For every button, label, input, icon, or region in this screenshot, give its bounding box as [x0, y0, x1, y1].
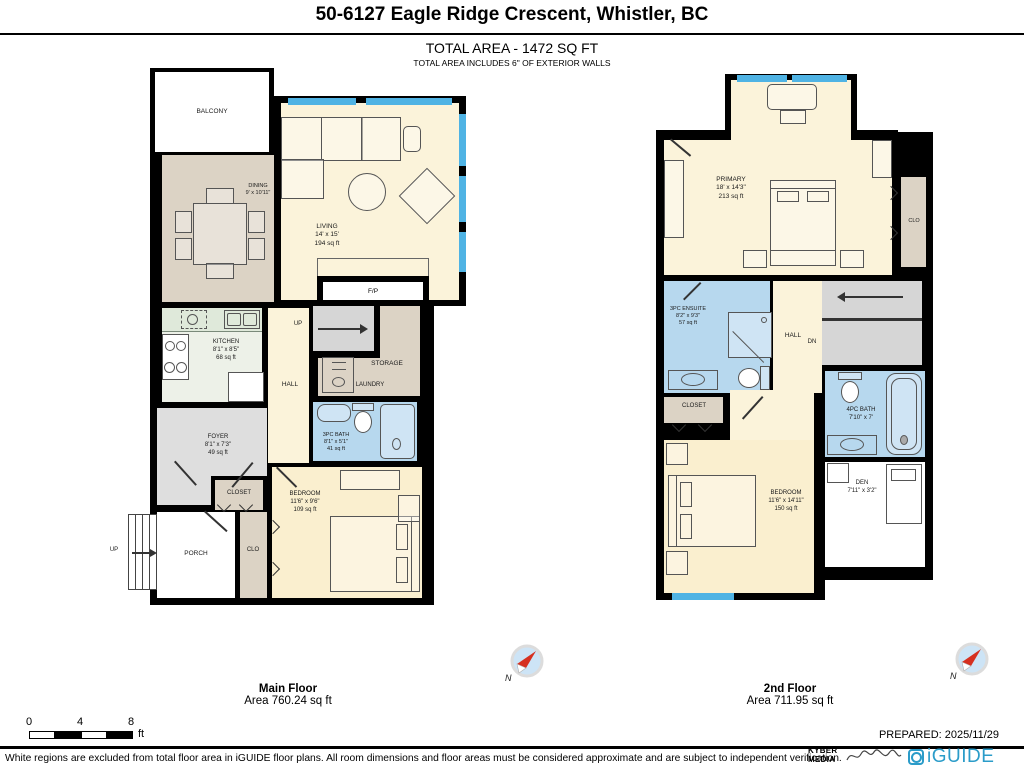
entry-stairs-arrow — [132, 552, 152, 554]
den-bed — [886, 464, 922, 524]
compass-n-label: N — [505, 673, 512, 683]
burner — [176, 341, 186, 351]
room-label-dn: DN — [808, 339, 817, 347]
stove — [162, 334, 189, 380]
nightstand — [666, 551, 688, 575]
pillow — [777, 191, 799, 202]
room-label-bedroom: BEDROOM 11'6" x 9'6" 109 sq ft — [289, 491, 320, 514]
headboard — [676, 476, 677, 546]
room-label-closet: CLOSET — [227, 490, 251, 498]
pillow — [807, 191, 829, 202]
room-name: HALL — [282, 381, 298, 389]
room-name: F/P — [368, 288, 378, 295]
kitchen-sink — [224, 310, 260, 329]
room-area: 194 sq ft — [315, 240, 340, 248]
floor-name: Main Floor — [168, 683, 408, 695]
dining-chair — [206, 188, 234, 204]
fireplace: F/P — [317, 276, 429, 306]
stairs-arrowhead — [837, 292, 845, 302]
scale-segment — [55, 731, 81, 739]
stairs-arrow — [318, 328, 360, 330]
wardrobe — [664, 160, 684, 238]
room-label-hall-2: HALL — [785, 332, 801, 340]
scale-unit: ft — [138, 728, 144, 740]
dining-chair — [206, 263, 234, 279]
room-name: STORAGE — [371, 360, 403, 368]
room-name: FOYER — [205, 434, 231, 442]
nightstand — [398, 495, 420, 522]
window-marker — [672, 593, 734, 600]
stairs-arrow — [845, 296, 903, 298]
tub-icon — [380, 404, 415, 459]
room-label-hall: HALL — [282, 381, 298, 389]
room-label-dining: DINING 9' x 10'11" — [246, 183, 271, 197]
pillow — [396, 557, 408, 583]
room-dims: 8'1" x 5'1" — [323, 439, 350, 446]
stairs-landing-edge — [822, 318, 922, 321]
room-label-bath: 3PC BATH 8'1" x 5'1" 41 sq ft — [323, 432, 350, 453]
window-marker — [792, 75, 847, 82]
room-name: PRIMARY — [716, 176, 746, 184]
dresser — [340, 470, 400, 490]
compass-icon: N — [948, 640, 992, 682]
window-marker — [366, 98, 452, 105]
signature — [845, 747, 903, 765]
floor-plan-sheet: 50-6127 Eagle Ridge Crescent, Whistler, … — [0, 0, 1024, 768]
burner — [176, 362, 187, 373]
compass-icon: N — [503, 642, 547, 684]
compass-n-label: N — [950, 671, 957, 681]
den-table — [827, 463, 849, 483]
pillow — [680, 482, 692, 507]
floor-area: Area 760.24 sq ft — [244, 695, 332, 707]
room-area: 41 sq ft — [323, 446, 350, 453]
pillow — [891, 469, 916, 481]
footer-disclaimer: White regions are excluded from total fl… — [5, 753, 842, 764]
scale-segment — [107, 731, 133, 739]
room-name: PORCH — [184, 550, 207, 558]
round-table — [348, 173, 386, 211]
vanity — [827, 435, 877, 455]
room-area: 213 sq ft — [716, 193, 746, 201]
window-marker — [459, 176, 466, 222]
window-marker — [459, 232, 466, 272]
room-label-den: DEN 7'11" x 3'2" — [847, 480, 876, 496]
room-name: CLO — [908, 218, 919, 225]
dining-chair — [248, 211, 265, 233]
hearth — [317, 258, 429, 278]
toilet-tank — [838, 372, 862, 380]
room-name: LAUNDRY — [356, 382, 385, 390]
room-name: DINING — [246, 183, 271, 190]
dining-chair — [175, 211, 192, 233]
compass-second: N — [948, 640, 992, 682]
drain — [392, 438, 401, 450]
room-label-storage: STORAGE — [371, 360, 403, 368]
dresser — [872, 140, 892, 178]
room-label-kitchen: KITCHEN 8'1" x 8'5" 68 sq ft — [213, 339, 239, 362]
sink-icon — [840, 438, 864, 451]
room-label-living: LIVING 14' x 15' 194 sq ft — [315, 223, 340, 248]
dining-chair — [248, 238, 265, 260]
sink-icon — [681, 373, 705, 386]
floor-area: Area 711.95 sq ft — [747, 695, 834, 707]
stairs-edge — [313, 351, 374, 356]
kitchen-island — [228, 372, 264, 402]
room-label-closet-2: CLOSET — [682, 403, 706, 411]
sofa-chaise — [281, 159, 324, 199]
scale-bar: 0 4 8 ft — [24, 716, 154, 742]
second-floor-caption: 2nd Floor Area 711.95 sq ft — [670, 683, 910, 707]
stairs-arrowhead — [360, 324, 368, 334]
room-area: 68 sq ft — [213, 355, 239, 363]
window-marker — [288, 98, 356, 105]
room-dims: 18' x 14'3" — [716, 184, 746, 192]
room-dims: 7'11" x 3'2" — [847, 488, 876, 496]
sink-bowl — [243, 313, 257, 326]
room-label-clo: CLO — [247, 547, 259, 555]
scale-tick: 0 — [26, 716, 32, 728]
room-area: 109 sq ft — [289, 507, 320, 515]
nightstand — [840, 250, 864, 268]
prepared-date: PREPARED: 2025/11/29 — [879, 729, 999, 741]
desk — [767, 84, 817, 110]
toilet-tank — [352, 403, 374, 411]
bed-2 — [668, 475, 756, 547]
room-label-bath-4pc: 4PC BATH 7'10" x 7' — [847, 407, 876, 423]
room-clo — [240, 512, 267, 598]
room-dims: 9' x 10'11" — [246, 190, 271, 197]
bed-primary — [770, 180, 836, 266]
room-name: 4PC BATH — [847, 407, 876, 415]
nightstand — [743, 250, 767, 268]
room-label-up: UP — [294, 321, 302, 329]
toilet-icon — [738, 368, 760, 388]
scale-tick: 8 — [128, 716, 134, 728]
room-name: BEDROOM — [289, 491, 320, 499]
room-label-bedroom-2: BEDROOM 11'6" x 14'11" 150 sq ft — [768, 490, 803, 513]
iguide-icon — [908, 749, 924, 765]
iguide-wordmark: iGUIDE — [927, 746, 994, 768]
room-name: DEN — [847, 480, 876, 488]
toilet-tank — [760, 366, 770, 390]
scale-tick: 4 — [77, 716, 83, 728]
room-dims: 11'6" x 9'6" — [289, 499, 320, 507]
room-name: BEDROOM — [768, 490, 803, 498]
room-name: UP — [110, 547, 118, 555]
scale-segment — [29, 731, 55, 739]
toilet-icon — [841, 381, 859, 403]
header-divider — [0, 33, 1024, 35]
room-name: KITCHEN — [213, 339, 239, 347]
room-storage — [380, 306, 420, 362]
kyber-media-logo: KYBER MEDIA — [808, 747, 838, 765]
headboard — [771, 188, 835, 189]
desk-chair — [780, 110, 806, 124]
side-table — [403, 126, 421, 152]
room-label-ensuite: 3PC ENSUITE 8'2" x 9'3" 57 sq ft — [670, 306, 706, 327]
dining-table — [193, 203, 247, 265]
dishwasher-icon — [181, 310, 207, 329]
headboard — [411, 517, 412, 591]
room-name: 3PC ENSUITE — [670, 306, 706, 313]
room-label-foyer: FOYER 8'1" x 7'3" 49 sq ft — [205, 434, 231, 457]
sink-icon — [317, 404, 351, 422]
room-dims: 7'10" x 7' — [847, 415, 876, 423]
shower-head — [761, 317, 767, 323]
washer-icon — [322, 357, 354, 393]
kyber-line: MEDIA — [808, 756, 838, 765]
burner — [165, 341, 175, 351]
room-name: CLOSET — [227, 490, 251, 498]
drain — [900, 435, 908, 445]
room-label-laundry: LAUNDRY — [356, 382, 385, 390]
room-name: 3PC BATH — [323, 432, 350, 439]
room-dims: 8'2" x 9'3" — [670, 313, 706, 320]
room-label-primary: PRIMARY 18' x 14'3" 213 sq ft — [716, 176, 746, 201]
tub-icon — [886, 373, 922, 455]
room-dims: 11'6" x 14'11" — [768, 498, 803, 506]
vanity — [668, 370, 718, 390]
burner — [164, 362, 175, 373]
total-area: TOTAL AREA - 1472 SQ FT — [0, 40, 1024, 56]
room-name: CLO — [247, 547, 259, 555]
room-name: CLOSET — [682, 403, 706, 411]
shower-icon — [728, 312, 772, 358]
room-label-clo-2: CLO — [908, 218, 919, 225]
room-label-porch: PORCH — [184, 550, 207, 558]
dishwasher-dial — [187, 314, 198, 325]
room-area: 49 sq ft — [205, 450, 231, 458]
iguide-logo: iGUIDE — [908, 746, 994, 768]
room-dims: 8'1" x 7'3" — [205, 442, 231, 450]
window-marker — [737, 75, 787, 82]
room-dims: 8'1" x 8'5" — [213, 347, 239, 355]
room-area: 57 sq ft — [670, 320, 706, 327]
room-name: UP — [294, 321, 302, 329]
washer-door — [332, 377, 345, 387]
entry-stairs-arrowhead — [150, 549, 157, 557]
room-area: 150 sq ft — [768, 506, 803, 514]
toilet-icon — [354, 411, 372, 433]
room-name: LIVING — [315, 223, 340, 231]
pillow — [680, 514, 692, 539]
compass-main: N — [503, 642, 547, 684]
washer-detail — [332, 362, 346, 370]
room-name: BALCONY — [196, 108, 227, 116]
room-label-entry-up: UP — [110, 547, 118, 555]
floor-name: 2nd Floor — [670, 683, 910, 695]
page-title: 50-6127 Eagle Ridge Crescent, Whistler, … — [0, 4, 1024, 26]
pillow — [396, 524, 408, 550]
nightstand — [666, 443, 688, 465]
room-name: DN — [808, 339, 817, 347]
dining-chair — [175, 238, 192, 260]
total-area-note: TOTAL AREA INCLUDES 6" OF EXTERIOR WALLS — [0, 58, 1024, 68]
sink-bowl — [227, 313, 241, 326]
window-marker — [459, 114, 466, 166]
bed — [330, 516, 420, 592]
main-floor-caption: Main Floor Area 760.24 sq ft — [168, 683, 408, 707]
scale-segment — [81, 731, 107, 739]
room-label-balcony: BALCONY — [196, 108, 227, 116]
bed-foot — [771, 250, 835, 251]
sofa — [281, 117, 401, 161]
room-name: HALL — [785, 332, 801, 340]
room-dims: 14' x 15' — [315, 231, 340, 239]
